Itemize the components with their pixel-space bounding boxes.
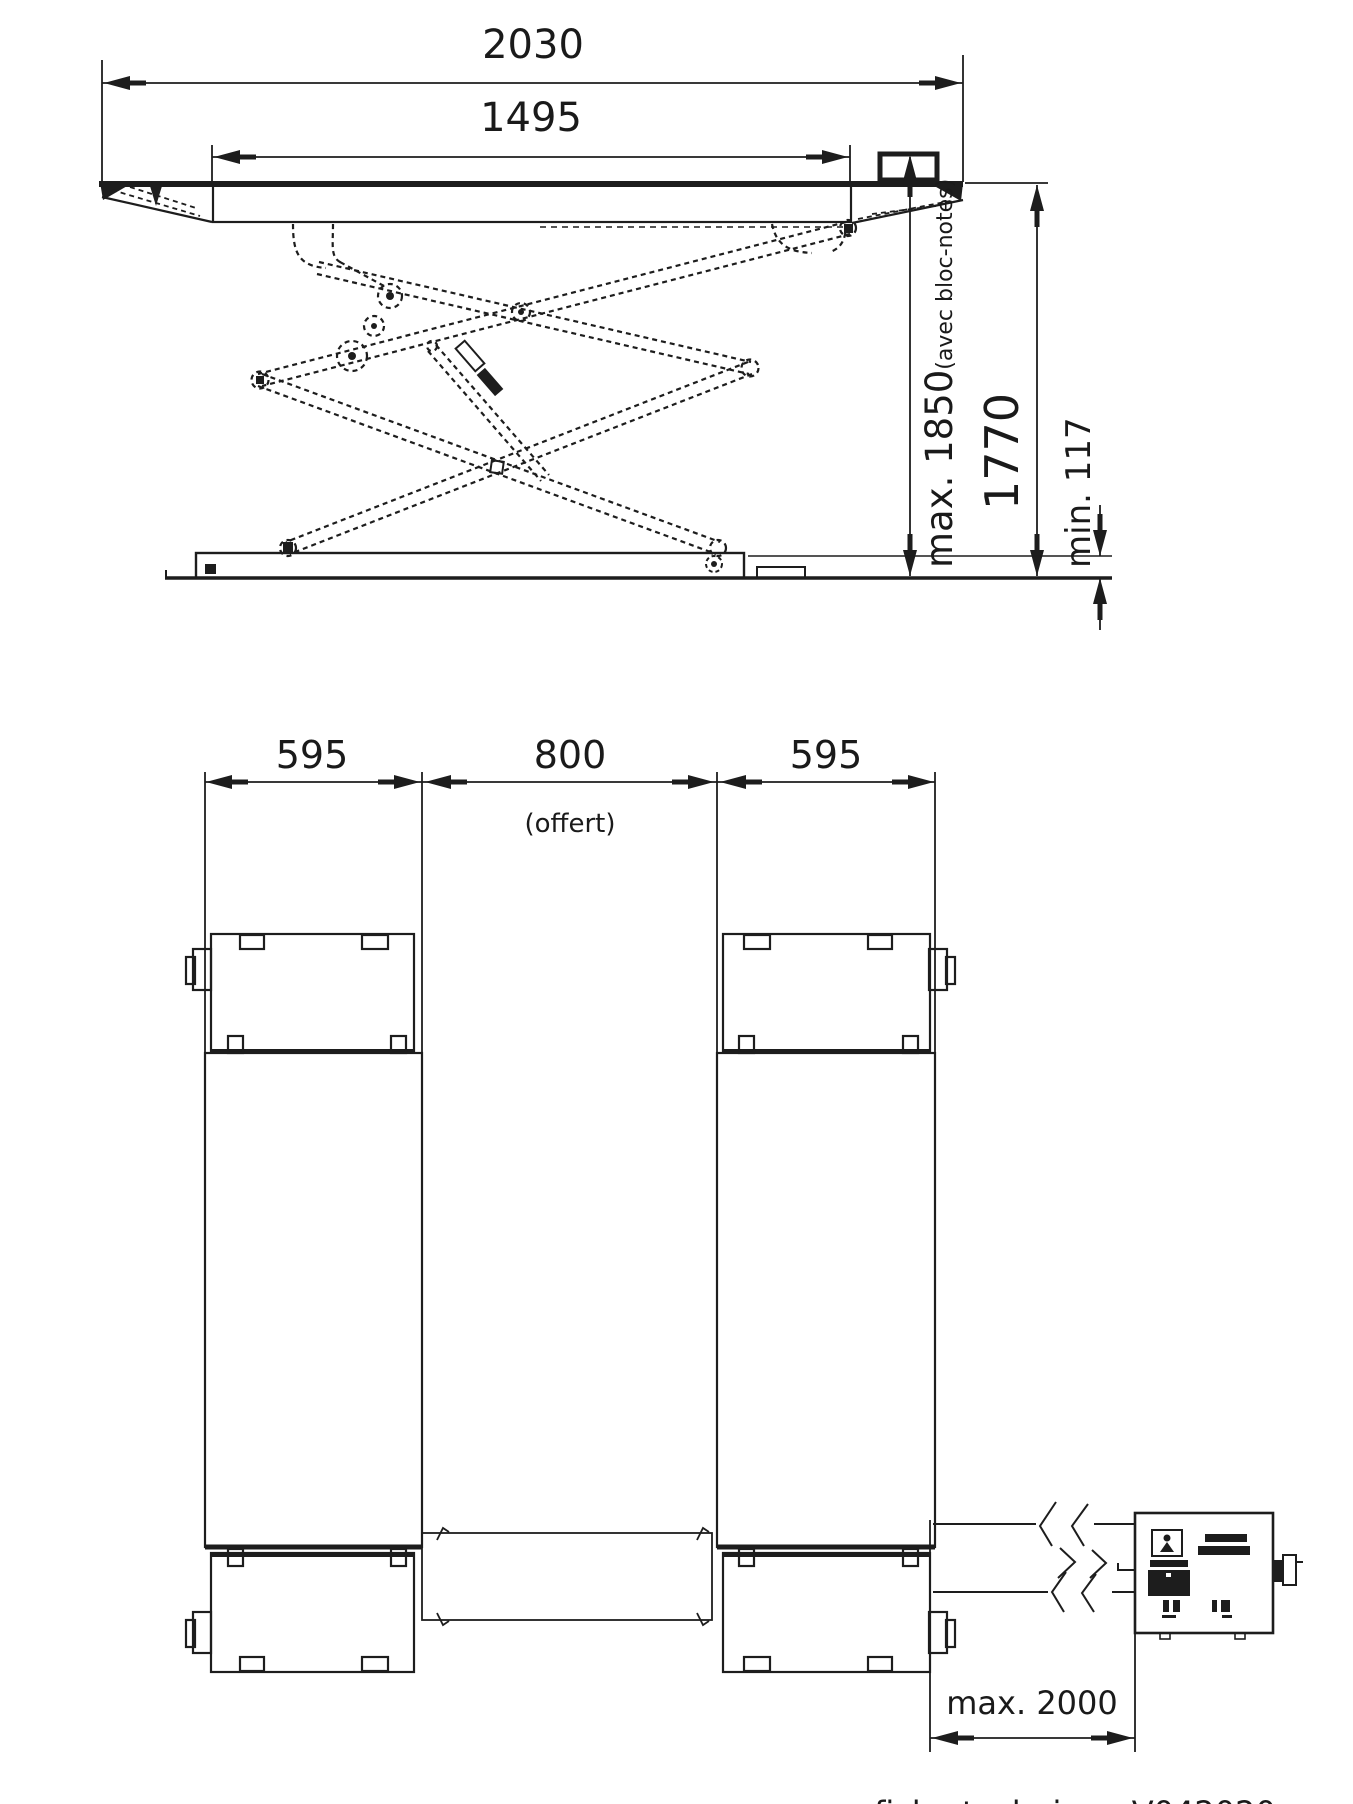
scissor-mechanism	[252, 220, 857, 556]
control-box	[1135, 1513, 1303, 1639]
side-view: 2030 1495	[99, 22, 1112, 630]
dim-left-runway-label: 595	[276, 733, 349, 777]
control-box-connector-icon	[1160, 1555, 1303, 1639]
dim-min-height-label: min. 117	[1059, 417, 1099, 568]
dim-gap-label: 800	[534, 733, 607, 777]
dim-cable-length-label: max. 2000	[946, 1684, 1118, 1722]
lower-cross-pivot	[490, 460, 504, 474]
right-runway	[717, 934, 955, 1672]
scissor-lift-drawing-canvas: 2030 1495	[0, 0, 1353, 1804]
cylinder-clevis	[456, 341, 485, 372]
footer-caption: fiche technique V042020	[874, 1794, 1276, 1804]
scissor-fittings	[256, 224, 853, 552]
dim-max-height: max. 1850(avec bloc-notes)	[903, 155, 961, 576]
control-cables	[933, 1502, 1135, 1612]
right-ramp-connector	[929, 949, 947, 990]
dim-runways: 595 800 (offert) 595	[205, 733, 935, 1053]
platform	[99, 182, 963, 227]
dim-platform-length-label: 1495	[480, 95, 582, 141]
right-runway-platform	[717, 1053, 935, 1547]
dim-max-height-label: max. 1850(avec bloc-notes)	[918, 179, 961, 568]
dim-lift-height: 1770	[965, 183, 1048, 576]
left-runway	[186, 934, 422, 1672]
center-cover-plate	[422, 1528, 712, 1625]
dim-overall-width-label: 2030	[482, 22, 584, 68]
dim-lift-height-label: 1770	[975, 393, 1029, 510]
dim-cable-length: max. 2000	[930, 1520, 1135, 1752]
control-box-logo-icon	[1152, 1530, 1182, 1556]
control-buttons-icon	[1162, 1600, 1232, 1618]
plan-view: 595 800 (offert) 595	[186, 733, 1303, 1752]
platform-left-wedge	[100, 182, 212, 222]
dim-platform-length: 1495	[212, 95, 850, 184]
technical-drawing-page: 2030 1495	[0, 0, 1353, 1804]
dim-right-runway-label: 595	[790, 733, 863, 777]
dim-gap-note-label: (offert)	[525, 809, 616, 839]
left-runway-platform	[205, 1053, 422, 1547]
